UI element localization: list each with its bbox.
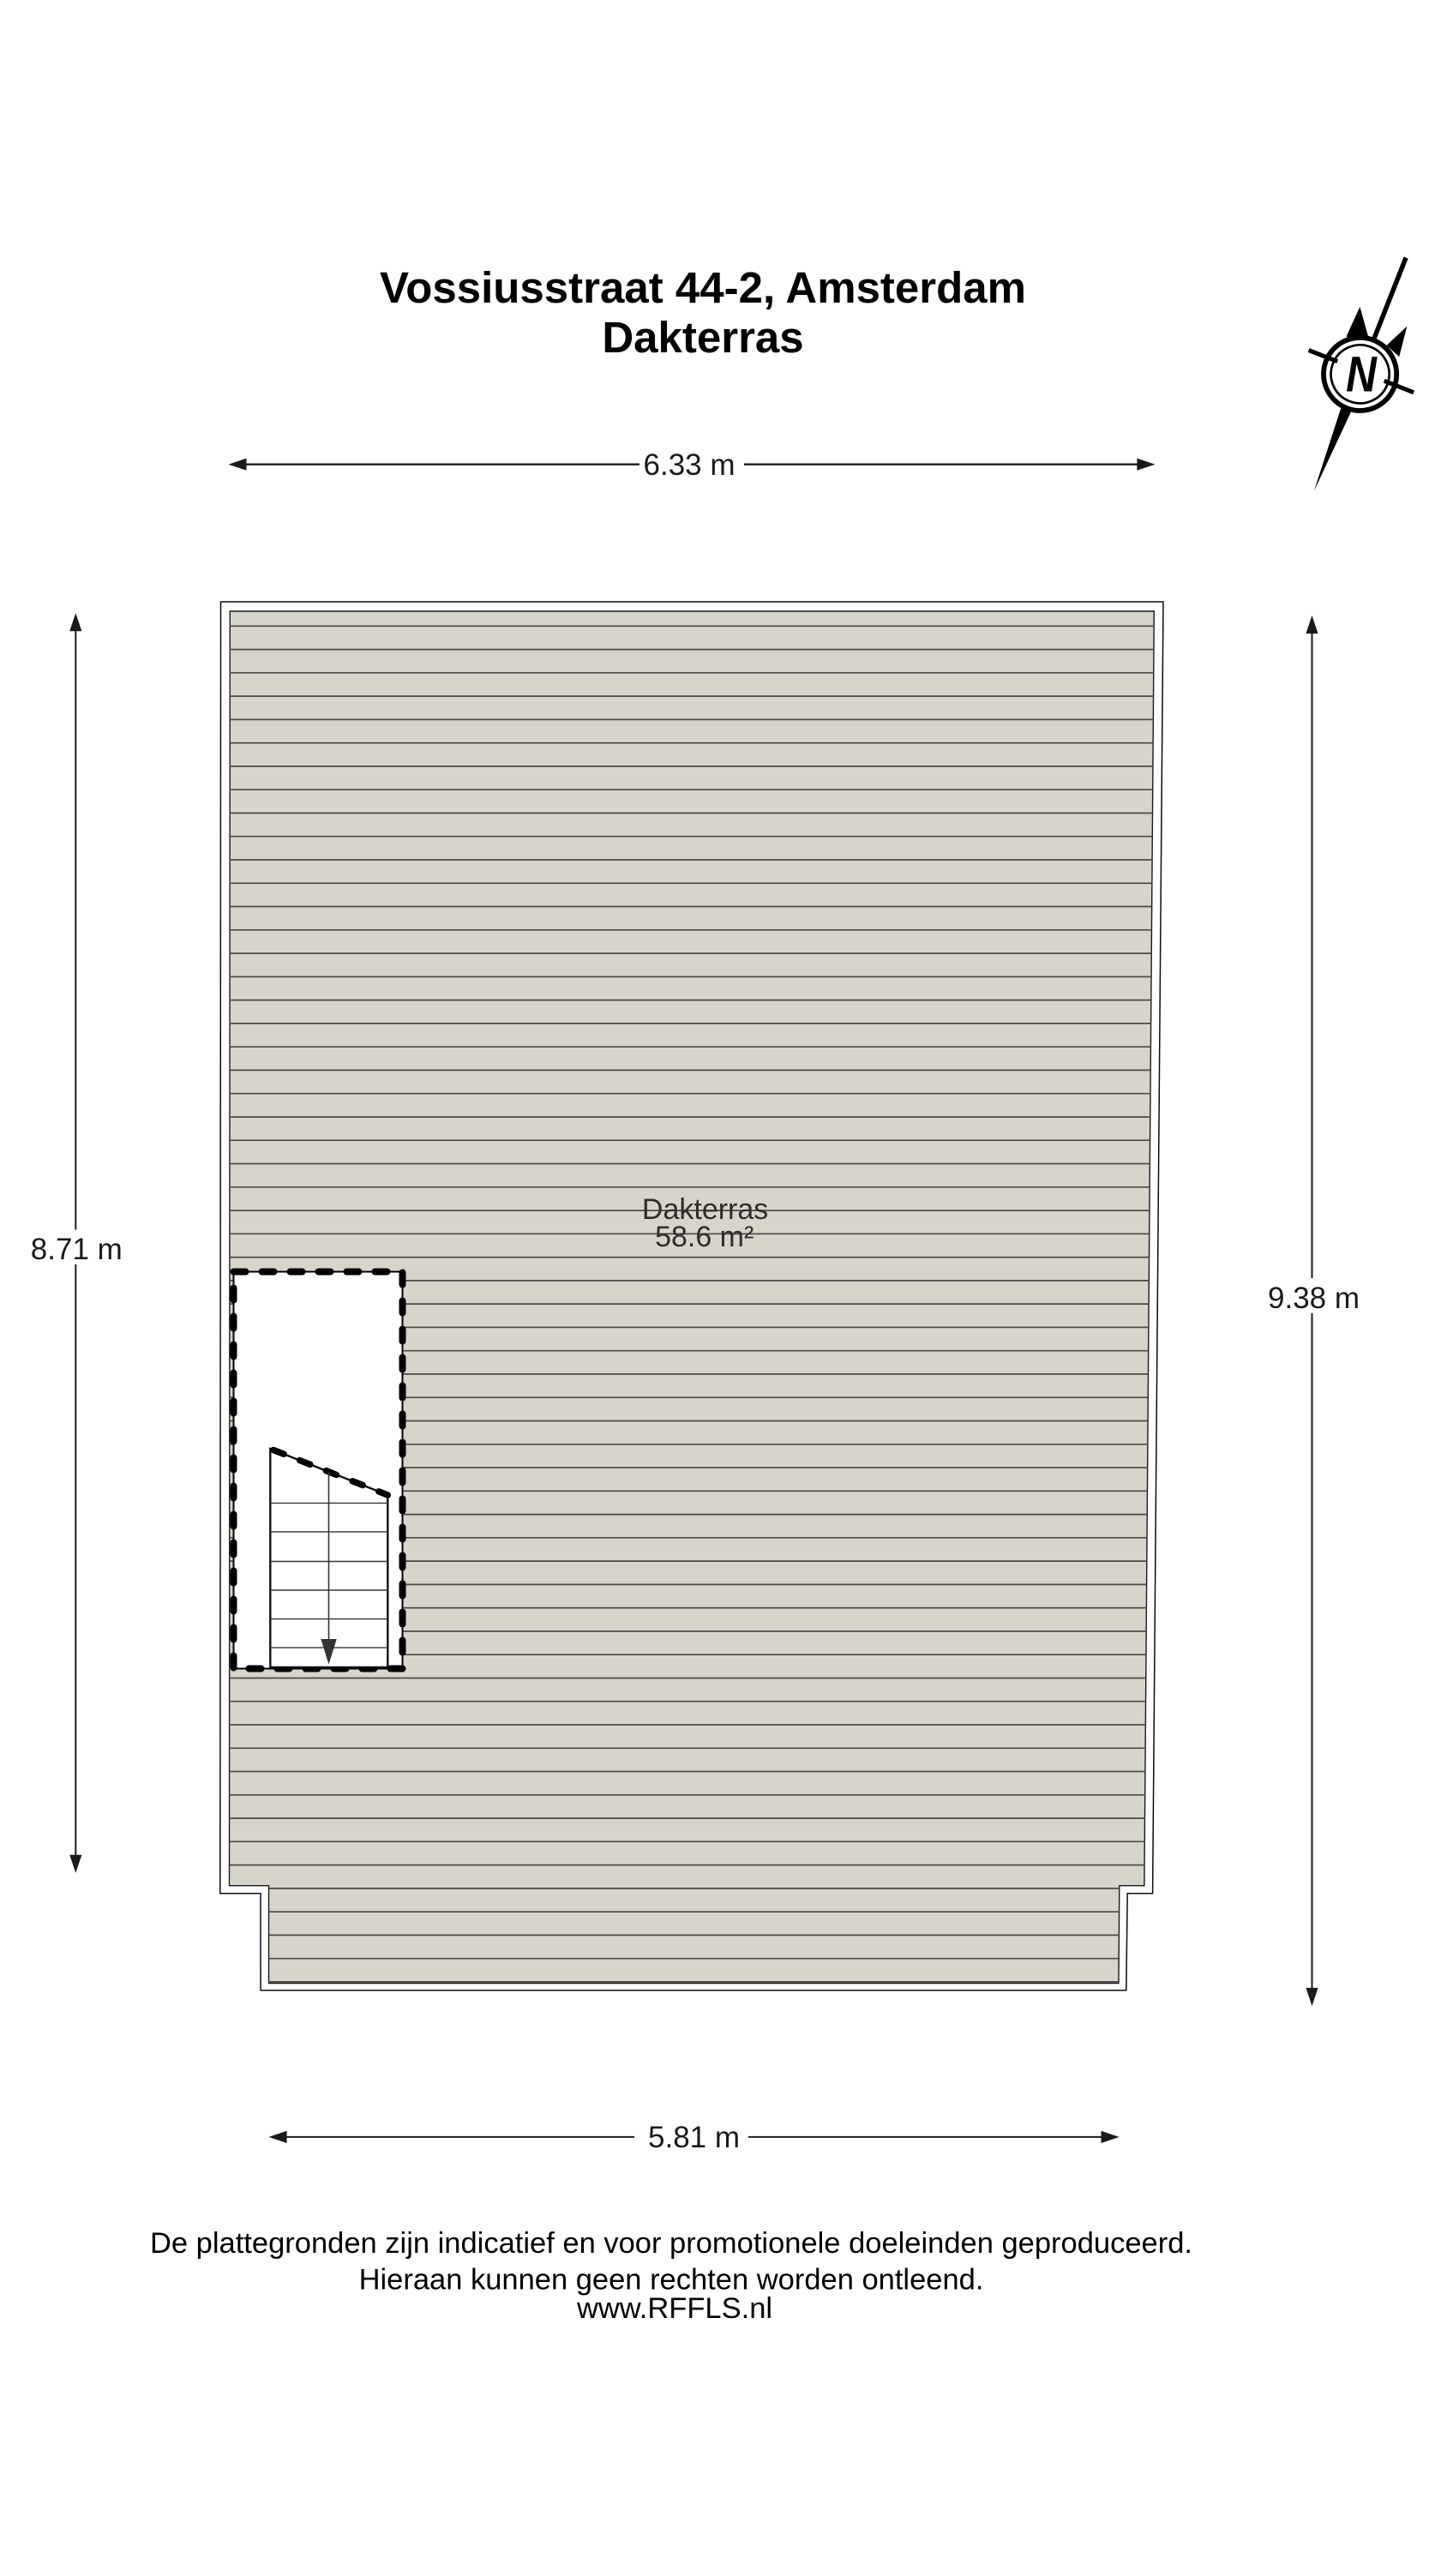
svg-text:www.RFFLS.nl: www.RFFLS.nl [576, 2292, 772, 2325]
svg-text:N: N [1346, 345, 1378, 402]
svg-text:58.6 m²: 58.6 m² [655, 1221, 754, 1253]
svg-text:Vossiusstraat 44-2, Amsterdam: Vossiusstraat 44-2, Amsterdam [380, 263, 1026, 312]
svg-text:5.81 m: 5.81 m [648, 2121, 740, 2154]
svg-text:6.33 m: 6.33 m [644, 448, 736, 482]
svg-text:De plattegronden zijn indicati: De plattegronden zijn indicatief en voor… [150, 2227, 1192, 2260]
svg-text:8.71 m: 8.71 m [31, 1233, 123, 1266]
svg-text:9.38 m: 9.38 m [1268, 1282, 1360, 1315]
svg-text:Dakterras: Dakterras [602, 313, 803, 362]
svg-text:Hieraan kunnen geen rechten wo: Hieraan kunnen geen rechten worden ontle… [359, 2264, 984, 2297]
